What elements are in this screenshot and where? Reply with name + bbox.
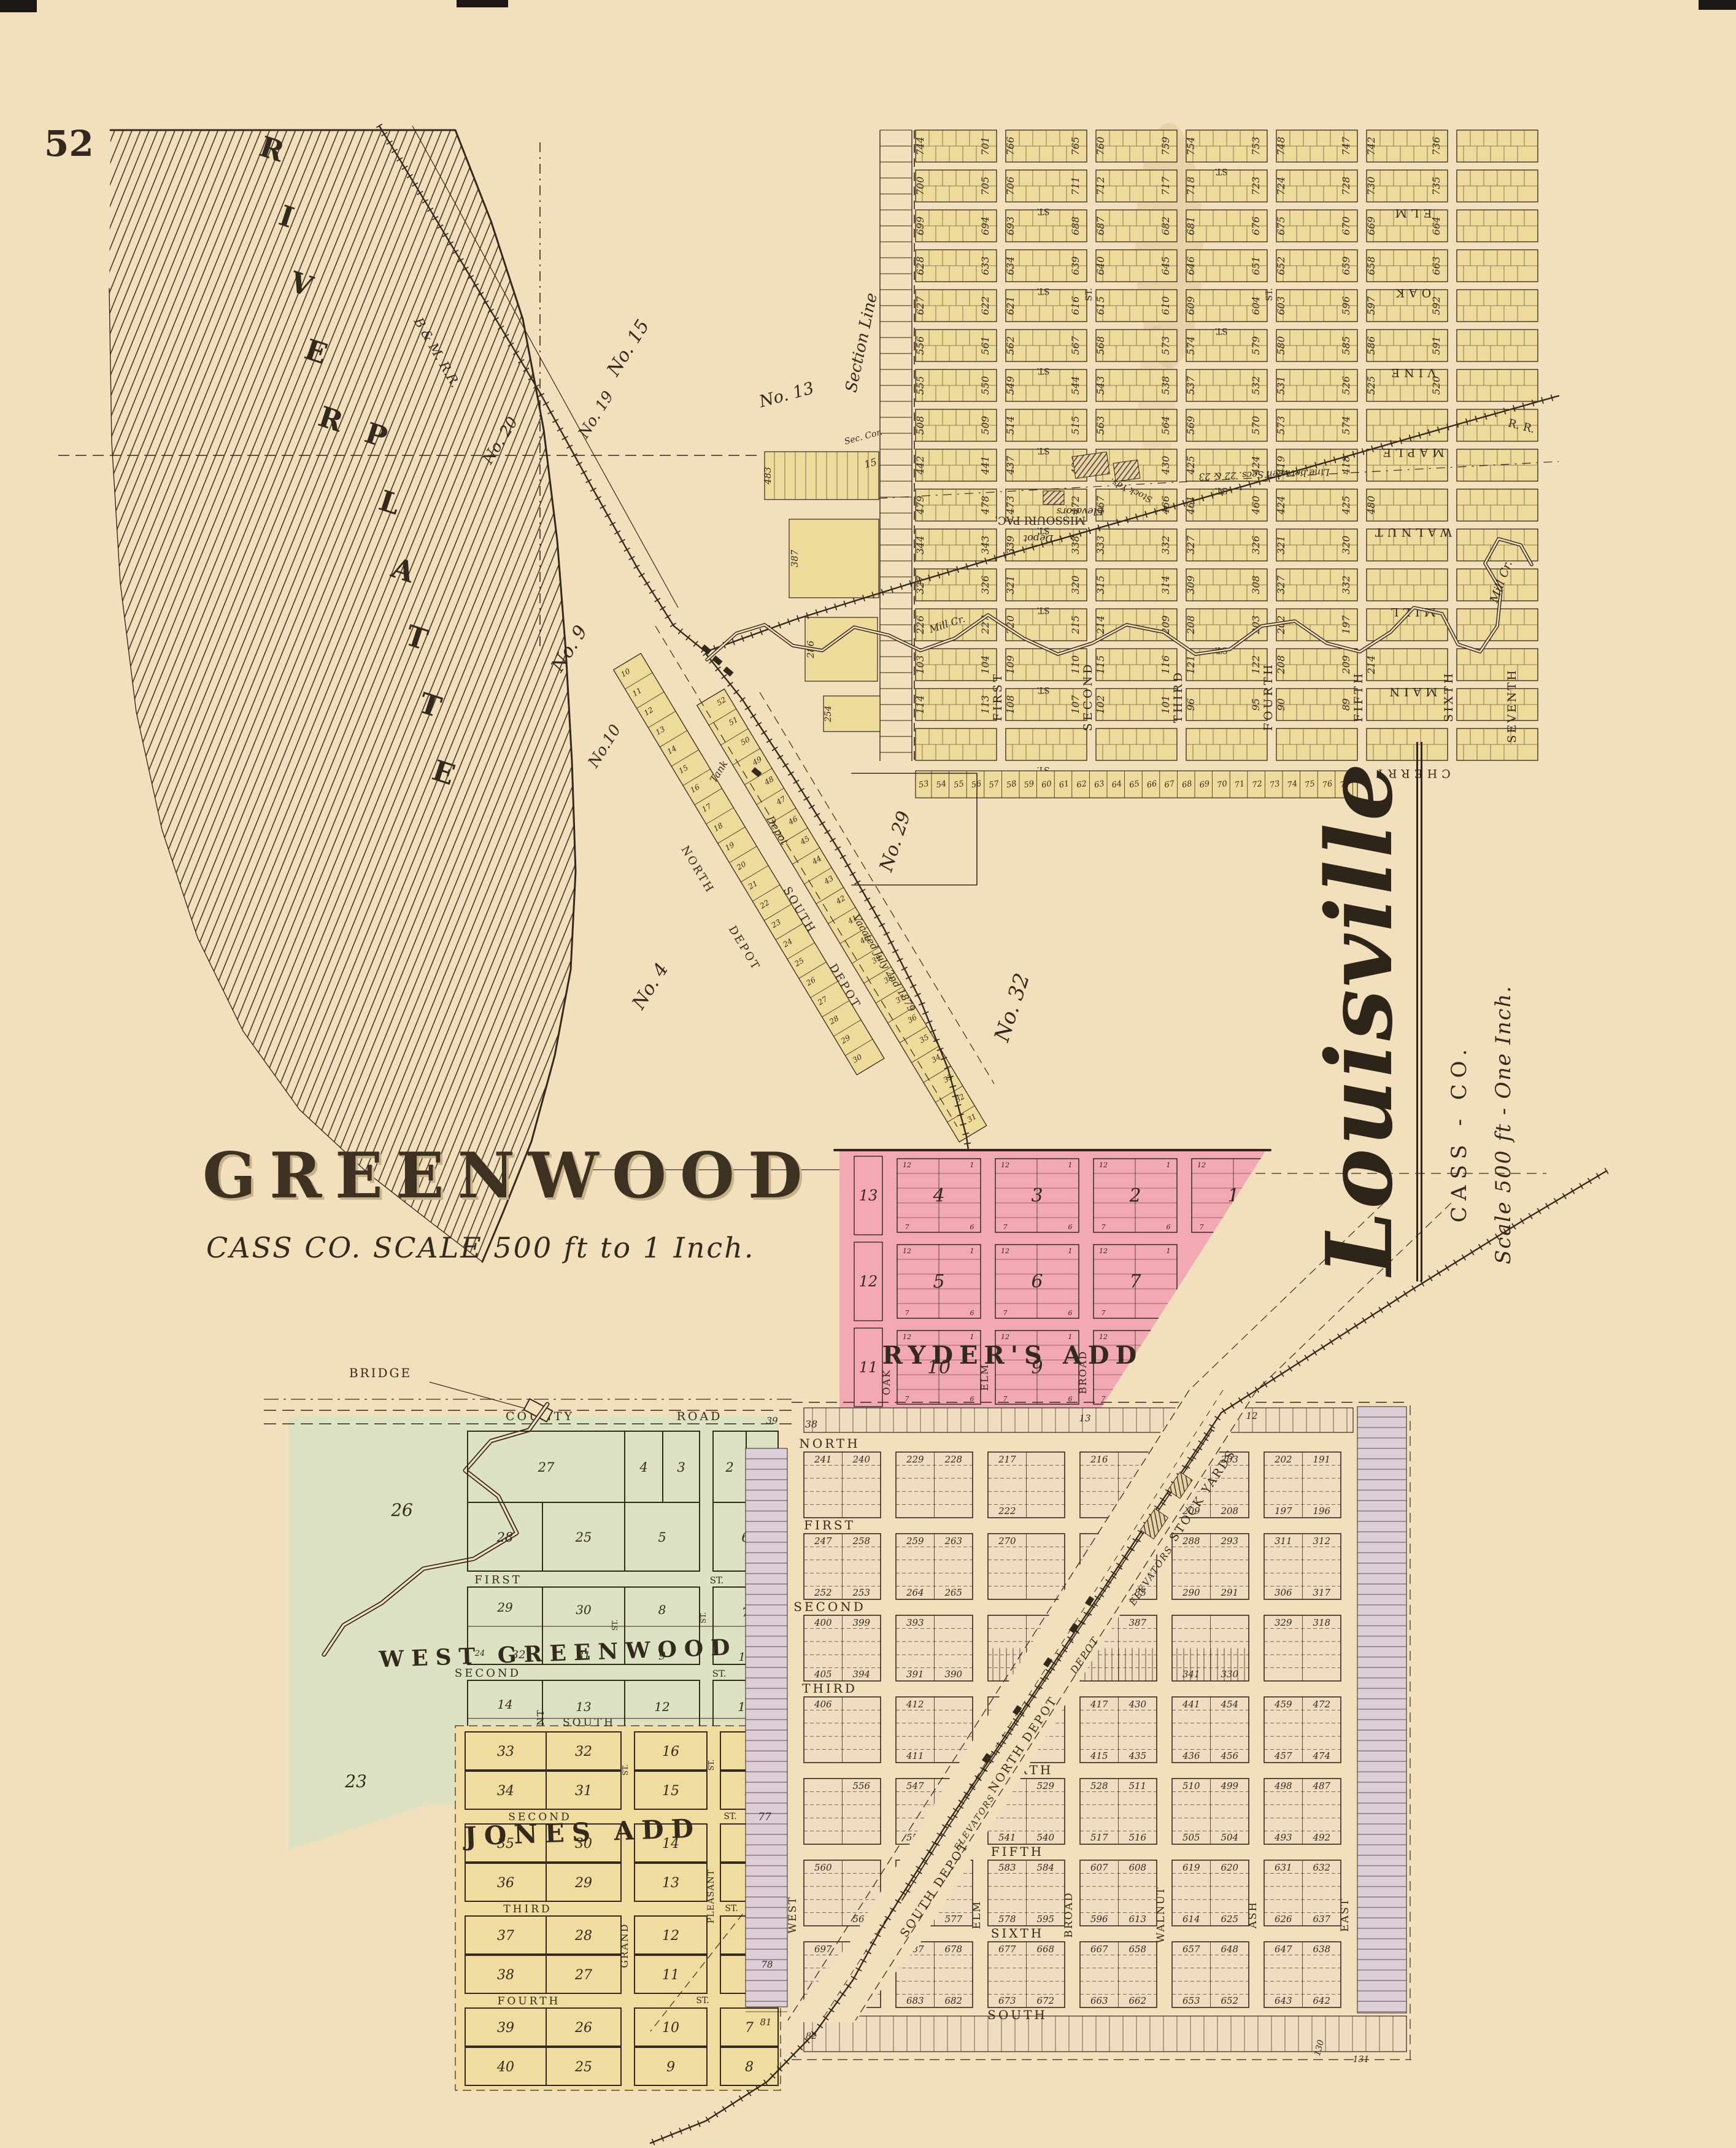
svg-text:SEVENTH: SEVENTH: [1505, 668, 1519, 743]
svg-text:683: 683: [906, 1995, 924, 2006]
svg-text:40: 40: [496, 2060, 514, 2075]
svg-text:12: 12: [903, 1161, 911, 1169]
svg-text:610: 610: [1160, 296, 1171, 315]
svg-text:424: 424: [1275, 496, 1287, 516]
svg-text:694: 694: [979, 217, 991, 236]
svg-text:514: 514: [1005, 416, 1016, 435]
svg-text:596: 596: [1340, 296, 1352, 315]
svg-text:6: 6: [1068, 1395, 1073, 1403]
svg-text:633: 633: [979, 257, 991, 276]
svg-text:214: 214: [1095, 616, 1106, 635]
svg-text:657: 657: [1182, 1944, 1200, 1955]
svg-text:MAIN: MAIN: [1385, 685, 1437, 698]
svg-text:614: 614: [1182, 1914, 1200, 1925]
svg-text:399: 399: [852, 1617, 870, 1628]
svg-text:619: 619: [1182, 1862, 1200, 1873]
svg-text:642: 642: [1313, 1995, 1330, 2006]
svg-text:473: 473: [1005, 496, 1016, 516]
svg-text:615: 615: [1095, 296, 1106, 315]
svg-text:241: 241: [814, 1454, 832, 1465]
svg-text:6: 6: [1167, 1309, 1171, 1317]
svg-text:67: 67: [1163, 779, 1176, 790]
svg-text:ST.: ST.: [621, 1764, 630, 1775]
svg-text:6: 6: [1265, 1223, 1269, 1231]
svg-text:114: 114: [914, 695, 926, 714]
svg-text:253: 253: [852, 1587, 870, 1598]
svg-text:214: 214: [1365, 655, 1377, 675]
svg-text:742: 742: [1365, 137, 1377, 156]
svg-text:568: 568: [1095, 336, 1106, 355]
svg-text:6: 6: [970, 1223, 974, 1231]
svg-text:329: 329: [1275, 1617, 1292, 1628]
svg-text:577: 577: [944, 1914, 962, 1925]
svg-text:12: 12: [1099, 1161, 1108, 1169]
svg-text:547: 547: [906, 1780, 924, 1791]
svg-text:8: 8: [745, 2060, 754, 2075]
svg-text:609: 609: [1185, 296, 1197, 315]
svg-text:621: 621: [1005, 296, 1016, 315]
svg-text:29: 29: [496, 1600, 513, 1615]
svg-text:442: 442: [914, 456, 926, 476]
svg-text:579: 579: [1250, 336, 1262, 355]
svg-text:583: 583: [998, 1862, 1016, 1873]
greenwood-title: GREENWOOD: [203, 1139, 816, 1213]
svg-text:516: 516: [1128, 1832, 1146, 1843]
svg-text:627: 627: [914, 296, 926, 315]
svg-text:WALNUT: WALNUT: [1371, 525, 1452, 539]
svg-text:748: 748: [1275, 137, 1287, 156]
svg-text:603: 603: [1275, 296, 1287, 315]
svg-text:13: 13: [576, 1699, 591, 1714]
svg-text:437: 437: [1005, 455, 1016, 475]
svg-text:318: 318: [1313, 1617, 1330, 1628]
svg-text:7: 7: [1003, 1395, 1008, 1403]
svg-text:SIXTH: SIXTH: [991, 1926, 1044, 1941]
svg-text:74: 74: [1287, 779, 1298, 790]
svg-text:247: 247: [814, 1536, 832, 1547]
svg-text:425: 425: [1185, 456, 1197, 476]
svg-text:10: 10: [662, 2020, 679, 2036]
svg-text:7: 7: [905, 1395, 909, 1403]
svg-text:209: 209: [1340, 655, 1352, 675]
svg-text:658: 658: [1128, 1944, 1146, 1955]
svg-text:706: 706: [1005, 177, 1016, 196]
svg-text:528: 528: [1090, 1780, 1108, 1791]
svg-text:504: 504: [1221, 1832, 1238, 1843]
svg-text:326: 326: [979, 576, 991, 595]
svg-text:81: 81: [760, 2017, 771, 2028]
svg-text:215: 215: [1070, 616, 1081, 635]
svg-text:441: 441: [1182, 1699, 1200, 1710]
svg-text:No. 15: No. 15: [603, 316, 654, 381]
svg-text:32: 32: [575, 1744, 592, 1760]
svg-text:NORTH: NORTH: [799, 1436, 860, 1451]
svg-text:544: 544: [1070, 376, 1081, 395]
svg-text:101: 101: [1160, 695, 1171, 714]
svg-text:SOUTH: SOUTH: [987, 2007, 1047, 2022]
svg-text:510: 510: [1182, 1780, 1200, 1791]
svg-text:208: 208: [1275, 655, 1287, 675]
svg-text:532: 532: [1250, 376, 1262, 395]
svg-text:400: 400: [814, 1617, 832, 1628]
svg-text:217: 217: [998, 1454, 1016, 1465]
svg-text:25: 25: [575, 1530, 592, 1545]
svg-text:1: 1: [970, 1333, 974, 1341]
svg-text:7: 7: [1101, 1309, 1106, 1317]
svg-text:306: 306: [1275, 1587, 1292, 1598]
svg-text:7: 7: [1129, 1271, 1141, 1292]
svg-text:16: 16: [662, 1744, 679, 1760]
svg-text:69: 69: [1199, 779, 1211, 790]
svg-text:3: 3: [677, 1460, 685, 1475]
svg-text:ST.: ST.: [1036, 366, 1049, 376]
svg-text:604: 604: [1250, 296, 1262, 315]
svg-text:541: 541: [998, 1832, 1016, 1843]
svg-text:11: 11: [662, 1968, 679, 1983]
svg-text:77: 77: [758, 1811, 771, 1823]
svg-text:291: 291: [1220, 1587, 1238, 1598]
svg-text:578: 578: [998, 1914, 1016, 1925]
svg-text:SOUTH: SOUTH: [563, 1717, 615, 1729]
svg-text:673: 673: [998, 1995, 1016, 2006]
svg-text:543: 543: [1095, 376, 1106, 395]
svg-text:586: 586: [1365, 336, 1377, 355]
svg-text:226: 226: [914, 616, 926, 635]
svg-text:113: 113: [979, 695, 991, 714]
svg-text:620: 620: [1221, 1862, 1238, 1873]
svg-text:652: 652: [1221, 1995, 1238, 2006]
svg-text:ST.: ST.: [725, 1904, 738, 1914]
svg-text:FIRST: FIRST: [991, 672, 1005, 722]
svg-text:89: 89: [1340, 698, 1352, 711]
svg-text:FOURTH: FOURTH: [498, 1995, 561, 2007]
svg-text:ELM: ELM: [1391, 206, 1432, 220]
svg-text:1: 1: [1068, 1333, 1073, 1341]
svg-text:550: 550: [979, 376, 991, 395]
svg-text:FIFTH: FIFTH: [991, 1844, 1044, 1859]
svg-text:12: 12: [1197, 1161, 1206, 1169]
svg-text:580: 580: [1275, 336, 1287, 355]
svg-text:DEPOT: DEPOT: [726, 924, 763, 973]
svg-text:411: 411: [906, 1750, 924, 1761]
svg-text:26: 26: [574, 2020, 592, 2036]
svg-text:2: 2: [1128, 1185, 1141, 1207]
svg-text:SECOND: SECOND: [793, 1599, 866, 1614]
svg-text:508: 508: [914, 416, 926, 435]
svg-text:332: 332: [1340, 576, 1352, 595]
svg-text:459: 459: [1274, 1699, 1292, 1710]
svg-text:730: 730: [1365, 177, 1377, 196]
svg-text:622: 622: [979, 296, 991, 315]
svg-text:333: 333: [1095, 536, 1106, 555]
svg-text:12: 12: [1099, 1333, 1108, 1341]
svg-text:78: 78: [761, 1959, 773, 1970]
svg-text:457: 457: [1274, 1750, 1292, 1761]
svg-text:37: 37: [497, 1928, 514, 1944]
svg-text:563: 563: [1095, 416, 1106, 435]
svg-text:7: 7: [1101, 1223, 1106, 1231]
svg-text:12: 12: [1246, 1410, 1257, 1421]
svg-text:36: 36: [497, 1876, 514, 1891]
svg-text:7: 7: [905, 1223, 909, 1231]
svg-text:597: 597: [1365, 296, 1377, 315]
svg-text:64: 64: [1111, 779, 1123, 790]
svg-text:591: 591: [1430, 336, 1442, 355]
svg-text:315: 315: [1095, 576, 1106, 595]
svg-text:687: 687: [1095, 216, 1106, 235]
svg-text:197: 197: [1275, 1505, 1292, 1516]
svg-text:ST.: ST.: [712, 1668, 727, 1679]
svg-text:678: 678: [944, 1944, 962, 1955]
svg-text:637: 637: [1313, 1914, 1330, 1925]
svg-text:326: 326: [1250, 536, 1262, 555]
svg-text:592: 592: [1430, 296, 1442, 315]
svg-text:735: 735: [1430, 177, 1442, 196]
svg-text:754: 754: [1185, 137, 1197, 156]
svg-text:ELM: ELM: [971, 1900, 983, 1929]
ryders-add: 4121763121762121761121765121766121767121…: [835, 1150, 1275, 1414]
svg-text:6: 6: [970, 1309, 974, 1317]
svg-text:39: 39: [766, 1415, 778, 1426]
louisville-scale-label: Scale 500 ft - One Inch.: [1491, 985, 1516, 1264]
svg-text:320: 320: [1340, 536, 1352, 555]
svg-text:FIRST: FIRST: [804, 1518, 855, 1532]
svg-text:480: 480: [1365, 496, 1377, 516]
svg-text:574: 574: [1185, 336, 1197, 355]
svg-text:511: 511: [1128, 1780, 1146, 1791]
svg-text:1: 1: [1167, 1247, 1171, 1255]
svg-text:27: 27: [538, 1460, 555, 1475]
svg-text:VINE: VINE: [1387, 366, 1437, 379]
svg-text:BROAD: BROAD: [1063, 1891, 1075, 1937]
svg-text:564: 564: [1160, 416, 1171, 435]
svg-text:12: 12: [1001, 1161, 1009, 1169]
svg-text:FOURTH: FOURTH: [1262, 662, 1275, 731]
svg-text:53: 53: [918, 779, 930, 790]
svg-text:Depot: Depot: [1023, 533, 1054, 544]
svg-text:309: 309: [1185, 576, 1197, 595]
svg-text:540: 540: [1036, 1832, 1054, 1843]
louisville-county-label: CASS - CO.: [1447, 1043, 1472, 1223]
svg-text:293: 293: [1220, 1536, 1238, 1547]
svg-text:121: 121: [1185, 655, 1197, 674]
svg-text:No. 19: No. 19: [574, 388, 617, 442]
svg-text:314: 314: [1160, 576, 1171, 595]
svg-text:191: 191: [1313, 1454, 1330, 1465]
svg-text:96: 96: [1185, 698, 1197, 711]
svg-text:701: 701: [979, 137, 991, 156]
svg-text:ST.: ST.: [696, 1996, 709, 2006]
svg-text:90: 90: [1275, 698, 1287, 711]
svg-text:415: 415: [1090, 1750, 1108, 1761]
svg-text:320: 320: [1070, 576, 1081, 595]
svg-text:THIRD: THIRD: [503, 1903, 552, 1915]
svg-text:31: 31: [575, 1783, 592, 1799]
svg-text:312: 312: [1313, 1536, 1330, 1547]
svg-text:1: 1: [1068, 1247, 1073, 1255]
svg-text:643: 643: [1275, 1995, 1292, 2006]
svg-text:461: 461: [1185, 496, 1197, 516]
svg-text:607: 607: [1090, 1862, 1108, 1873]
svg-text:ST.: ST.: [611, 1620, 619, 1631]
svg-text:549: 549: [1005, 376, 1016, 395]
svg-text:573: 573: [1160, 336, 1171, 355]
svg-text:391: 391: [906, 1669, 924, 1680]
svg-text:ST.: ST.: [1036, 286, 1049, 296]
svg-text:OAK: OAK: [881, 1369, 892, 1396]
svg-text:7: 7: [905, 1309, 909, 1317]
svg-text:651: 651: [1250, 257, 1262, 276]
svg-text:ST.: ST.: [1036, 605, 1049, 615]
svg-text:711: 711: [1070, 177, 1081, 196]
svg-text:677: 677: [998, 1944, 1016, 1955]
svg-text:487: 487: [1312, 1780, 1330, 1791]
svg-text:556: 556: [914, 336, 926, 355]
svg-text:311: 311: [1275, 1536, 1292, 1547]
svg-text:38: 38: [497, 1968, 514, 1983]
svg-text:109: 109: [1005, 655, 1016, 674]
svg-text:479: 479: [914, 496, 926, 516]
svg-text:ST.: ST.: [723, 1812, 736, 1822]
svg-text:454: 454: [1220, 1699, 1238, 1710]
svg-text:95: 95: [1250, 698, 1262, 711]
svg-text:259: 259: [906, 1536, 924, 1547]
svg-text:425: 425: [1340, 496, 1352, 516]
svg-text:RYDER'S ADD: RYDER'S ADD: [882, 1341, 1143, 1370]
svg-text:616: 616: [1070, 296, 1081, 315]
svg-text:104: 104: [979, 655, 991, 674]
svg-text:23: 23: [344, 1771, 367, 1791]
svg-text:682: 682: [1160, 217, 1171, 236]
svg-text:263: 263: [944, 1536, 962, 1547]
svg-text:116: 116: [1160, 655, 1171, 674]
svg-text:317: 317: [1313, 1587, 1330, 1598]
svg-text:2: 2: [725, 1460, 733, 1475]
svg-text:290: 290: [1182, 1587, 1200, 1598]
svg-text:7: 7: [1200, 1223, 1204, 1231]
svg-text:ST.: ST.: [1214, 326, 1227, 336]
svg-text:1: 1: [1265, 1161, 1269, 1169]
svg-text:196: 196: [1313, 1505, 1330, 1516]
svg-text:574: 574: [1340, 416, 1352, 435]
svg-text:573: 573: [1275, 416, 1287, 435]
svg-text:55: 55: [953, 779, 965, 790]
svg-text:728: 728: [1340, 177, 1352, 196]
svg-text:254: 254: [824, 706, 833, 723]
svg-text:12: 12: [1001, 1333, 1009, 1341]
svg-text:1: 1: [970, 1161, 974, 1169]
svg-text:11: 11: [859, 1359, 878, 1376]
svg-text:658: 658: [1365, 257, 1377, 276]
svg-text:417: 417: [1090, 1699, 1108, 1710]
svg-text:667: 667: [1090, 1944, 1108, 1955]
svg-text:110: 110: [1070, 655, 1081, 674]
svg-text:115: 115: [1095, 655, 1106, 674]
svg-text:608: 608: [1128, 1862, 1146, 1873]
svg-text:6: 6: [1068, 1223, 1073, 1231]
svg-text:72: 72: [1251, 779, 1263, 790]
svg-text:343: 343: [979, 536, 991, 555]
svg-text:SECOND: SECOND: [1081, 662, 1095, 732]
svg-text:ST.: ST.: [1214, 166, 1227, 176]
svg-text:28: 28: [574, 1928, 592, 1944]
svg-text:33: 33: [497, 1744, 514, 1760]
svg-text:56: 56: [971, 779, 982, 790]
svg-text:57: 57: [988, 779, 1000, 790]
svg-text:58: 58: [1006, 779, 1017, 790]
svg-text:5: 5: [658, 1530, 666, 1545]
svg-text:59: 59: [1024, 779, 1035, 790]
svg-text:584: 584: [1036, 1862, 1054, 1873]
svg-text:12: 12: [654, 1699, 669, 1714]
svg-text:Section Line: Section Line: [842, 292, 881, 395]
svg-text:327: 327: [1275, 575, 1287, 594]
svg-text:BRIDGE: BRIDGE: [349, 1366, 412, 1380]
svg-text:525: 525: [1365, 376, 1377, 395]
svg-text:229: 229: [906, 1454, 924, 1465]
svg-text:653: 653: [1182, 1995, 1200, 2006]
atlas-sheet: RIVERPLATTE74470176676576075975475374874…: [0, 0, 1736, 2148]
svg-text:670: 670: [1340, 217, 1352, 236]
svg-text:562: 562: [1005, 336, 1016, 355]
svg-text:412: 412: [906, 1699, 924, 1710]
svg-text:509: 509: [979, 416, 991, 435]
svg-text:556: 556: [852, 1780, 870, 1791]
svg-text:ST.: ST.: [1036, 685, 1049, 695]
svg-text:264: 264: [906, 1587, 924, 1598]
svg-text:705: 705: [979, 177, 991, 196]
svg-text:15: 15: [662, 1783, 679, 1799]
svg-text:570: 570: [1250, 416, 1262, 435]
svg-text:663: 663: [1090, 1995, 1108, 2006]
svg-text:WEST: WEST: [787, 1896, 799, 1934]
svg-text:THIRD: THIRD: [802, 1681, 857, 1696]
svg-text:71: 71: [1234, 779, 1246, 790]
svg-text:435: 435: [1128, 1750, 1146, 1761]
svg-text:61: 61: [1059, 779, 1070, 790]
svg-text:12: 12: [662, 1928, 679, 1944]
svg-text:No. 32: No. 32: [990, 970, 1035, 1045]
svg-text:208: 208: [1220, 1505, 1238, 1516]
svg-text:ST.: ST.: [710, 1575, 724, 1586]
svg-text:7: 7: [1101, 1395, 1106, 1403]
svg-text:753: 753: [1250, 137, 1262, 156]
svg-text:5: 5: [933, 1271, 944, 1292]
svg-text:1: 1: [1068, 1161, 1073, 1169]
svg-text:WALNUT: WALNUT: [1155, 1887, 1167, 1944]
svg-text:68: 68: [1181, 779, 1193, 790]
svg-text:6: 6: [1167, 1223, 1171, 1231]
svg-text:202: 202: [1274, 1454, 1292, 1465]
svg-text:765: 765: [1070, 137, 1081, 156]
svg-text:26: 26: [390, 1500, 413, 1520]
svg-text:652: 652: [1275, 257, 1287, 276]
svg-text:102: 102: [1095, 695, 1106, 714]
svg-text:265: 265: [944, 1587, 962, 1598]
svg-text:537: 537: [1185, 376, 1197, 395]
svg-text:122: 122: [1250, 655, 1262, 674]
svg-text:492: 492: [1312, 1832, 1330, 1843]
svg-text:760: 760: [1095, 137, 1106, 156]
svg-text:638: 638: [1313, 1944, 1330, 1955]
svg-text:12: 12: [903, 1247, 911, 1255]
svg-text:339: 339: [1005, 536, 1016, 555]
svg-text:647: 647: [1275, 1944, 1292, 1955]
svg-text:6: 6: [1068, 1309, 1073, 1317]
svg-text:MAPLE: MAPLE: [1378, 446, 1444, 459]
svg-text:270: 270: [998, 1536, 1016, 1547]
louisville-title: Louisville: [1306, 742, 1422, 1281]
